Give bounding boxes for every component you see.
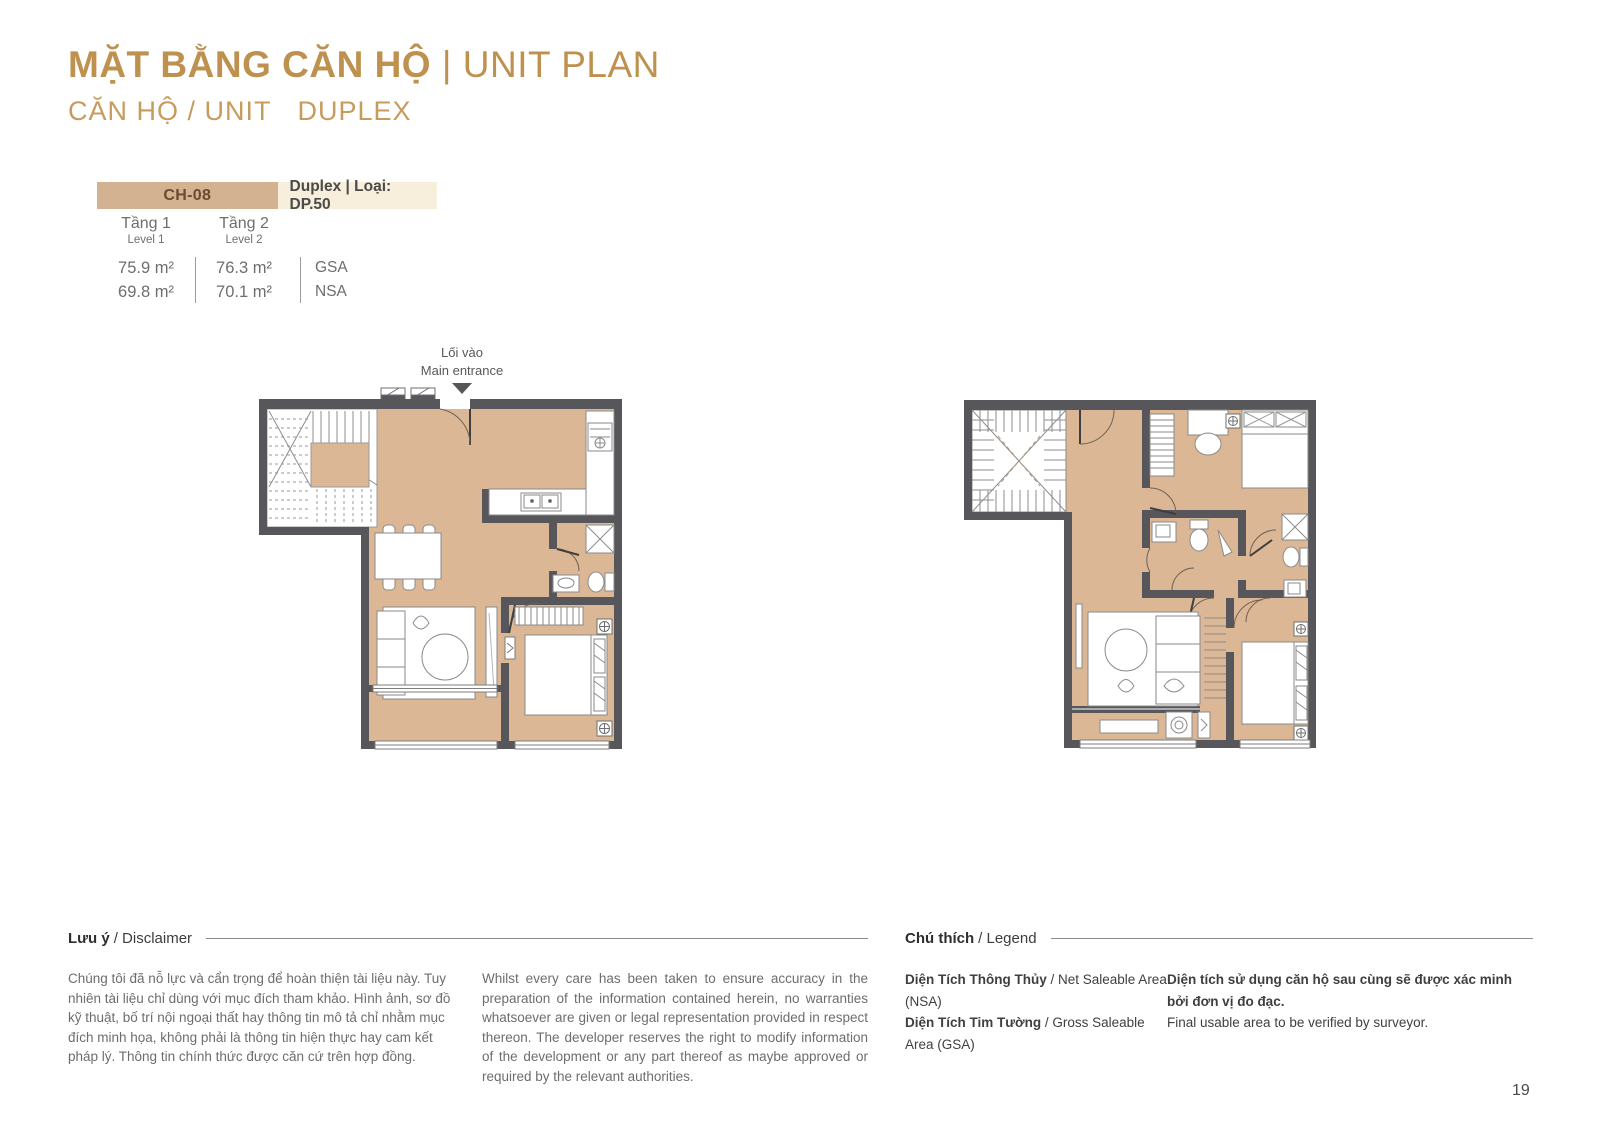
heading-rule xyxy=(1051,938,1533,939)
table-divider xyxy=(300,257,301,303)
floor-plan-level-1 xyxy=(253,385,628,757)
dining-table-symbol xyxy=(375,525,441,590)
legend-note-en: Final usable area to be verified by surv… xyxy=(1167,1012,1533,1034)
nsa-level-2: 70.1 m² xyxy=(195,283,293,302)
gsa-level-2: 76.3 m² xyxy=(195,259,293,278)
page-number: 19 xyxy=(1512,1082,1530,1100)
legend-heading-vi: Chú thích xyxy=(905,930,974,947)
ceiling-fixture-icon xyxy=(1294,622,1308,636)
ceiling-fixture-icon xyxy=(1294,726,1308,740)
ceiling-fixture-icon xyxy=(597,721,612,736)
unit-table-level-headers: Tầng 1 Level 1 Tầng 2 Level 2 xyxy=(97,215,293,246)
nsa-level-1: 69.8 m² xyxy=(97,283,195,302)
page-title-en: UNIT PLAN xyxy=(463,44,660,85)
level-2-header: Tầng 2 Level 2 xyxy=(195,215,293,246)
heading-rule xyxy=(206,938,868,939)
title-divider: | xyxy=(442,44,452,85)
entrance-label-en: Main entrance xyxy=(392,362,532,380)
legend-heading-en: / Legend xyxy=(978,930,1036,947)
floor-plan-level-2 xyxy=(950,390,1338,758)
legend-items: Diện Tích Thông Thủy / Net Saleable Area… xyxy=(905,969,1167,1055)
nsa-label: NSA xyxy=(293,283,347,301)
subtitle-unit-type: DUPLEX xyxy=(298,96,412,126)
disclaimer-text-vi: Chúng tôi đã nỗ lực và cẩn trọng để hoàn… xyxy=(68,969,466,1086)
unit-code-badge: CH-08 xyxy=(97,182,278,209)
legend-note-vi: Diện tích sử dụng căn hộ sau cùng sẽ đượ… xyxy=(1167,969,1533,1012)
level-2-label-en: Level 2 xyxy=(195,234,293,246)
disclaimer-heading-en: / Disclaimer xyxy=(114,930,192,947)
level-1-label-vi: Tầng 1 xyxy=(97,215,195,233)
ceiling-fixture-icon xyxy=(1226,414,1240,428)
legend-heading: Chú thích / Legend xyxy=(905,930,1533,947)
legend-note: Diện tích sử dụng căn hộ sau cùng sẽ đượ… xyxy=(1167,969,1533,1055)
unit-info-table: CH-08 Duplex | Loại: DP.50 Tầng 1 Level … xyxy=(97,182,437,304)
level-2-label-vi: Tầng 2 xyxy=(195,215,293,233)
subtitle-label: CĂN HỘ / UNIT xyxy=(68,96,271,126)
legend-item: Diện Tích Tim Tường / Gross Saleable Are… xyxy=(905,1012,1167,1055)
level-1-header: Tầng 1 Level 1 xyxy=(97,215,195,246)
ceiling-fixture-icon xyxy=(597,619,612,634)
level-1-label-en: Level 1 xyxy=(97,234,195,246)
gsa-label: GSA xyxy=(293,259,348,277)
unit-table-header-row: CH-08 Duplex | Loại: DP.50 xyxy=(97,182,437,209)
unit-plan-page: MẶT BẰNG CĂN HỘ | UNIT PLAN CĂN HỘ / UNI… xyxy=(0,0,1600,1131)
nsa-row: 69.8 m² 70.1 m² NSA xyxy=(97,280,437,304)
legend-item: Diện Tích Thông Thủy / Net Saleable Area… xyxy=(905,969,1167,1012)
gsa-row: 75.9 m² 76.3 m² GSA xyxy=(97,256,437,280)
page-title: MẶT BẰNG CĂN HỘ | UNIT PLAN xyxy=(68,44,660,86)
legend-section: Chú thích / Legend Diện Tích Thông Thủy … xyxy=(905,930,1533,1055)
unit-table-areas: 75.9 m² 76.3 m² GSA 69.8 m² 70.1 m² NSA xyxy=(97,256,437,304)
entrance-label-vi: Lối vào xyxy=(392,344,532,362)
page-title-vi: MẶT BẰNG CĂN HỘ xyxy=(68,44,431,85)
entry-cabinet-symbol xyxy=(381,388,435,400)
table-divider xyxy=(195,257,196,303)
gsa-level-1: 75.9 m² xyxy=(97,259,195,278)
unit-type-badge: Duplex | Loại: DP.50 xyxy=(278,182,437,209)
page-header: MẶT BẰNG CĂN HỘ | UNIT PLAN CĂN HỘ / UNI… xyxy=(68,44,660,127)
disclaimer-text-en: Whilst every care has been taken to ensu… xyxy=(482,969,868,1086)
page-subtitle: CĂN HỘ / UNIT DUPLEX xyxy=(68,96,660,127)
disclaimer-section: Lưu ý / Disclaimer Chúng tôi đã nỗ lực v… xyxy=(68,930,868,1086)
staircase-symbol xyxy=(972,410,1066,512)
staircase-symbol xyxy=(267,409,377,527)
disclaimer-heading: Lưu ý / Disclaimer xyxy=(68,930,868,947)
disclaimer-heading-vi: Lưu ý xyxy=(68,930,110,947)
